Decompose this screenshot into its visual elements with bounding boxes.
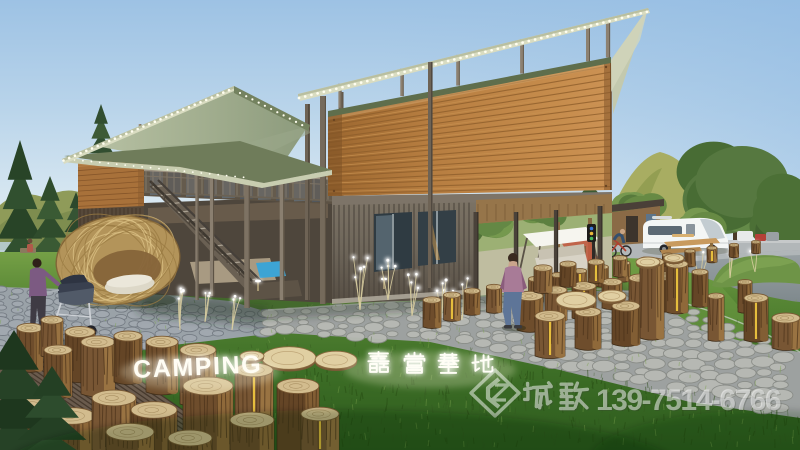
svg-text:CAMPING: CAMPING (132, 350, 262, 384)
